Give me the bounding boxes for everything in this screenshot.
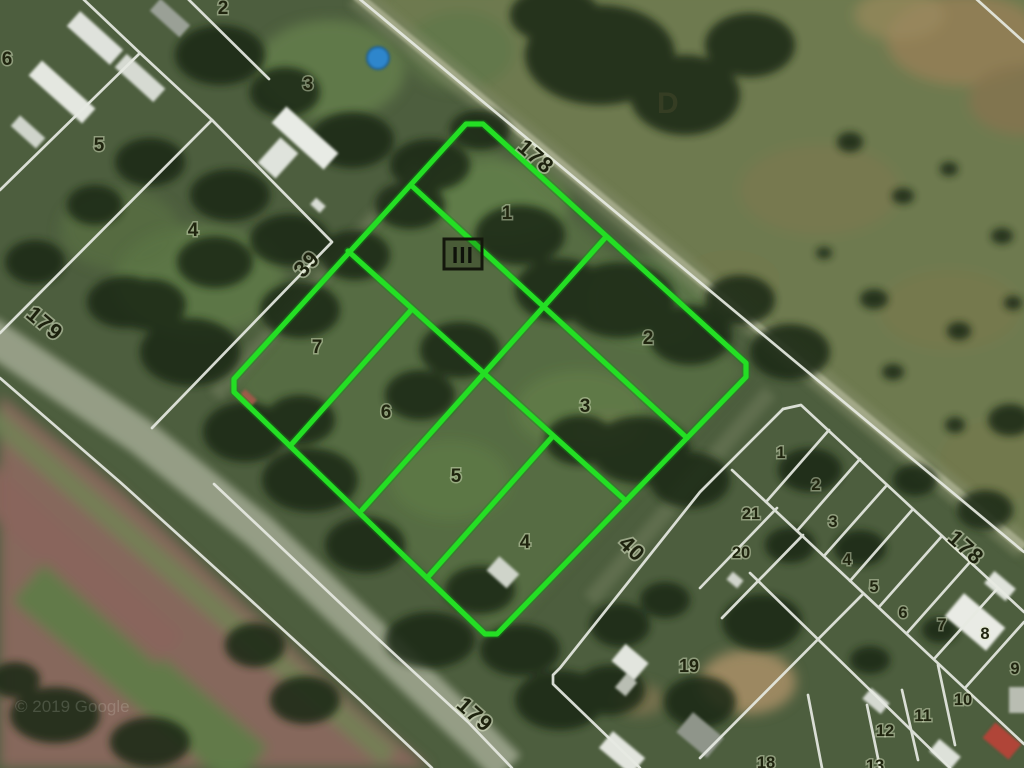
lot-label-east-4: 4 — [842, 551, 852, 569]
lot-label-east-13: 13 — [866, 757, 884, 768]
lot-label-west-3: 3 — [303, 74, 314, 95]
lot-label-east-1: 1 — [776, 444, 785, 462]
house-roof — [1009, 687, 1024, 713]
lot-label-east-6: 6 — [898, 604, 907, 622]
lot-label-green-4: 4 — [520, 532, 531, 553]
lot-label-west-5: 5 — [94, 135, 105, 156]
lot-label-west-6: 6 — [2, 49, 13, 70]
lot-label-east-2: 2 — [811, 476, 820, 494]
lot-label-green-1: 1 — [502, 203, 513, 224]
lot-label-east-21: 21 — [742, 505, 760, 523]
lot-label-green-6: 6 — [381, 402, 392, 423]
lot-label-green-2: 2 — [643, 328, 654, 349]
lot-label-east-19: 19 — [679, 656, 699, 676]
watermark: © 2019 Google — [15, 697, 130, 716]
lot-label-east-11: 11 — [914, 707, 931, 725]
lot-label-east-5: 5 — [869, 578, 878, 596]
lot-label-green-5: 5 — [451, 466, 462, 487]
lot-label-east-12: 12 — [876, 722, 894, 740]
lot-label-east-9: 9 — [1010, 660, 1019, 678]
satellite-map: 178 178 39 40 179 179 D III 1 2 3 4 5 6 … — [0, 0, 1024, 768]
map-canvas: 178 178 39 40 179 179 D III 1 2 3 4 5 6 … — [0, 0, 1024, 768]
district-label: D — [657, 87, 679, 120]
lot-label-west-4: 4 — [188, 220, 199, 241]
lot-label-green-7: 7 — [312, 337, 323, 358]
block-marker-box: III — [444, 239, 482, 269]
block-marker: III — [452, 242, 474, 268]
lot-label-west-2: 2 — [218, 0, 229, 19]
lot-label-east-7: 7 — [937, 616, 946, 634]
lot-label-east-18: 18 — [757, 754, 775, 768]
lot-label-green-3: 3 — [580, 396, 591, 417]
lot-label-east-3: 3 — [828, 513, 837, 531]
lot-label-east-10: 10 — [954, 691, 972, 709]
lot-label-east-8: 8 — [980, 625, 989, 643]
swimming-pool — [367, 47, 389, 69]
lot-label-east-20: 20 — [732, 544, 750, 562]
